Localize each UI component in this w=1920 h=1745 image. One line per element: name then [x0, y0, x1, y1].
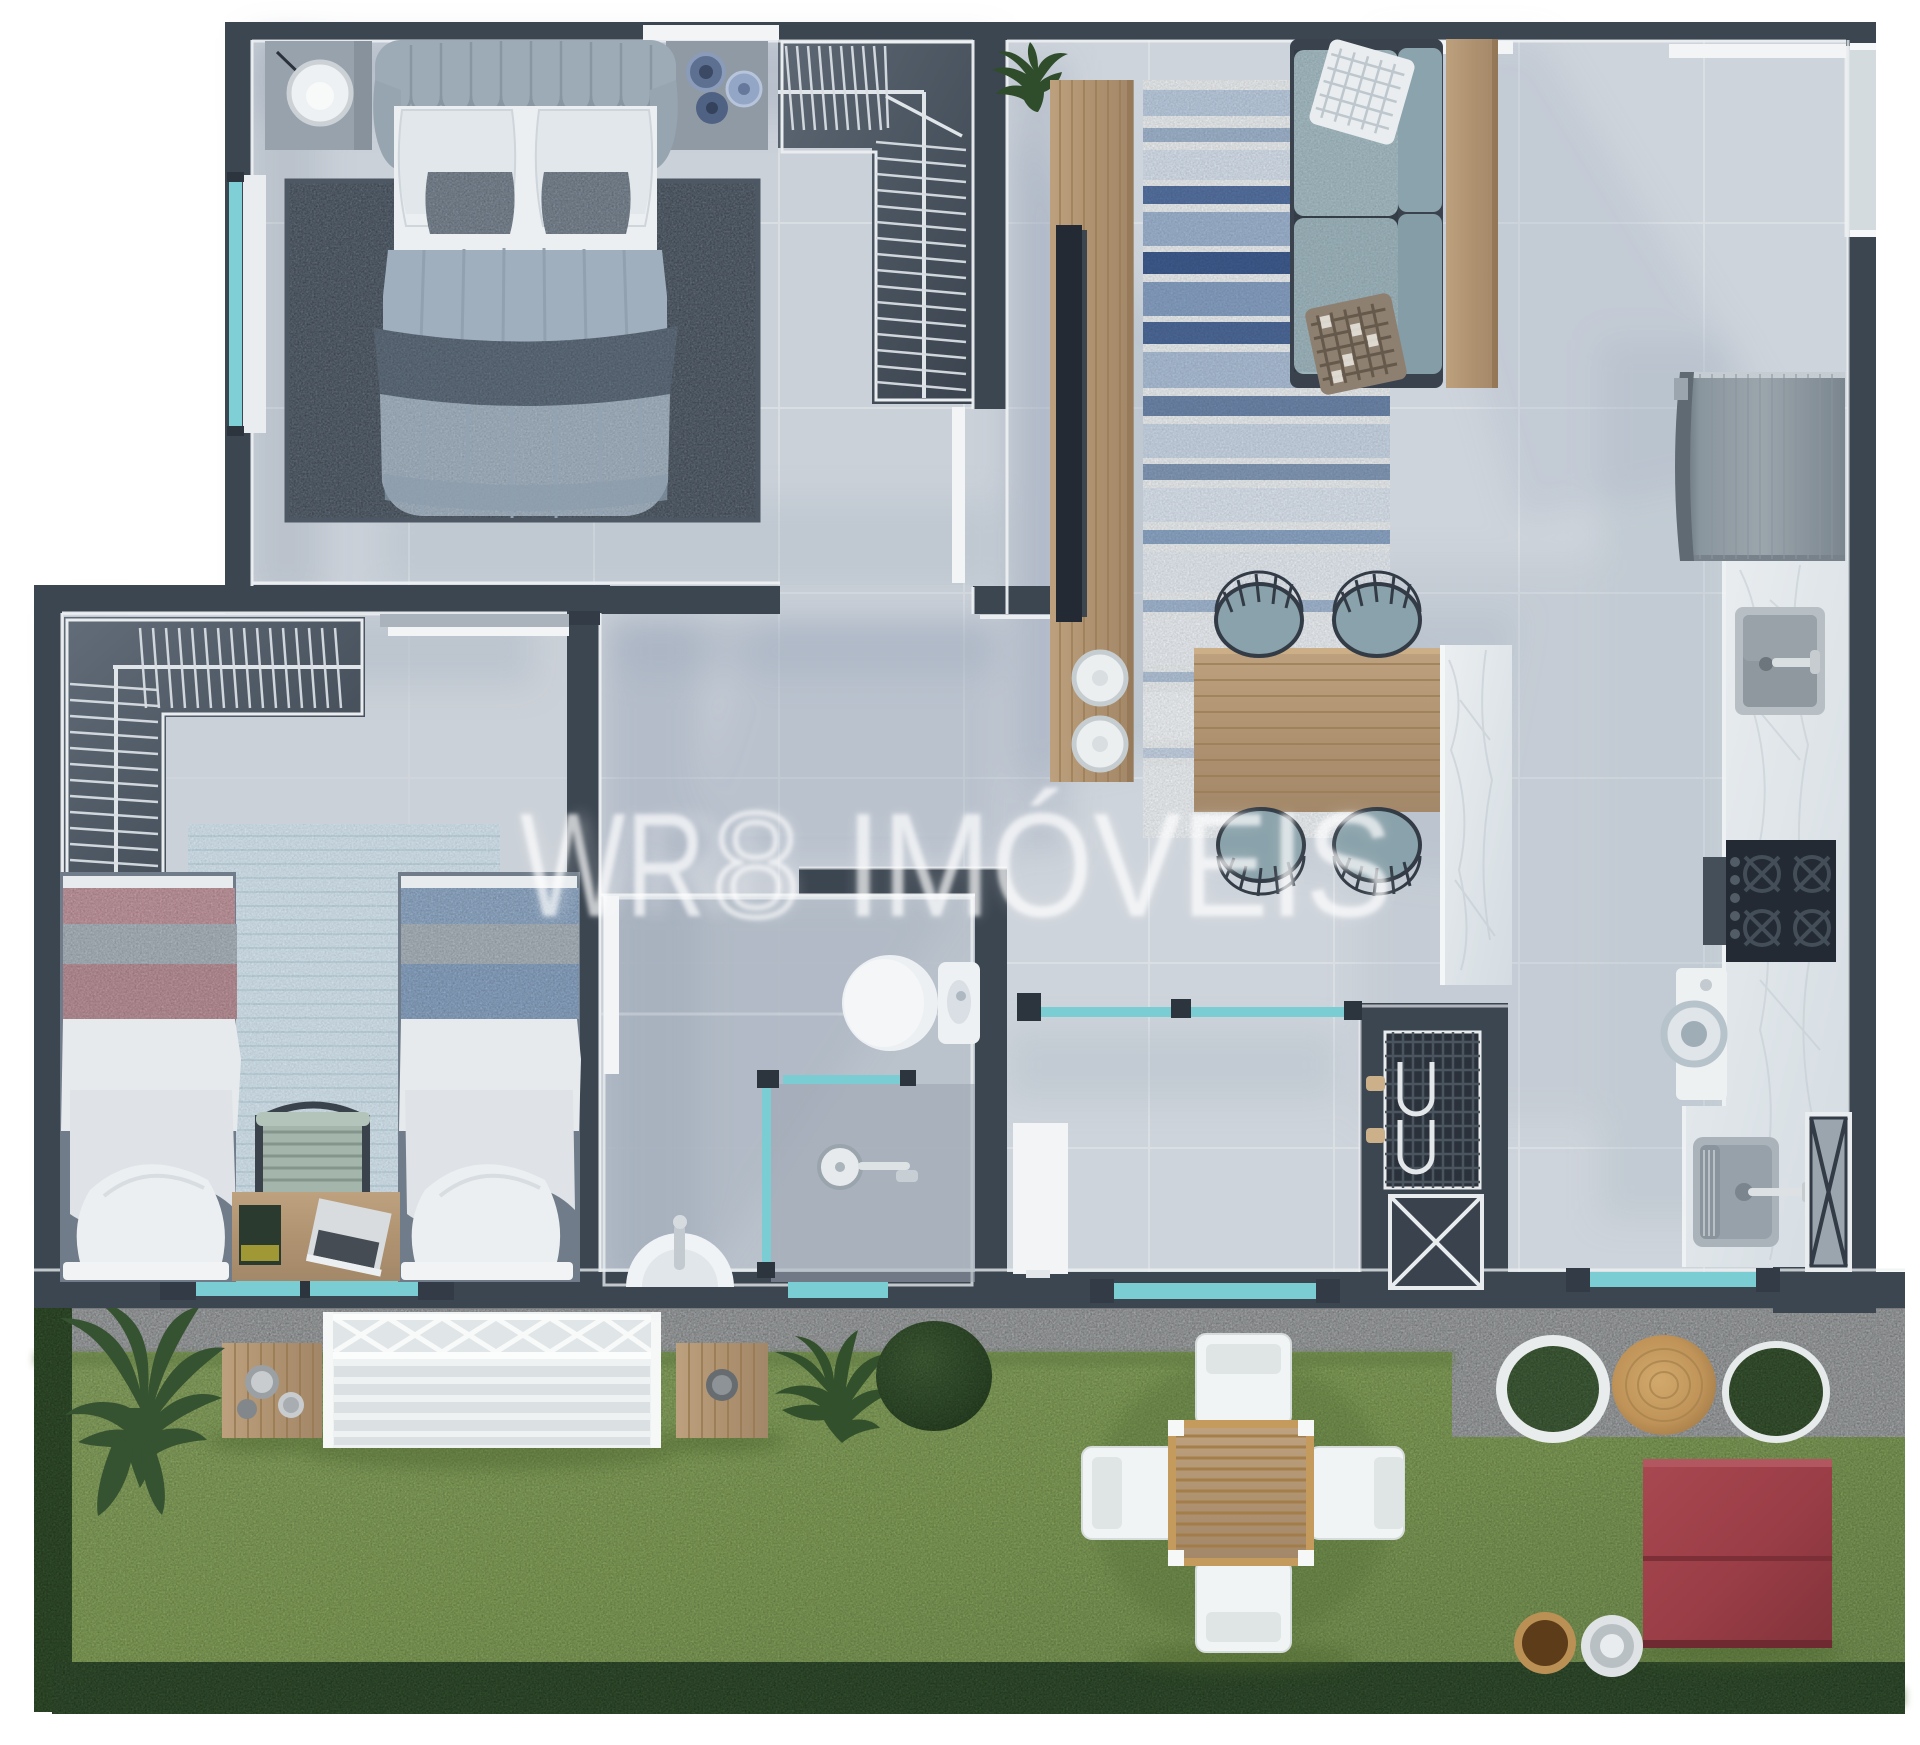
- svg-text:IMÓVEIS: IMÓVEIS: [845, 783, 1393, 948]
- svg-text:8: 8: [712, 783, 800, 948]
- svg-text:WR: WR: [520, 783, 706, 948]
